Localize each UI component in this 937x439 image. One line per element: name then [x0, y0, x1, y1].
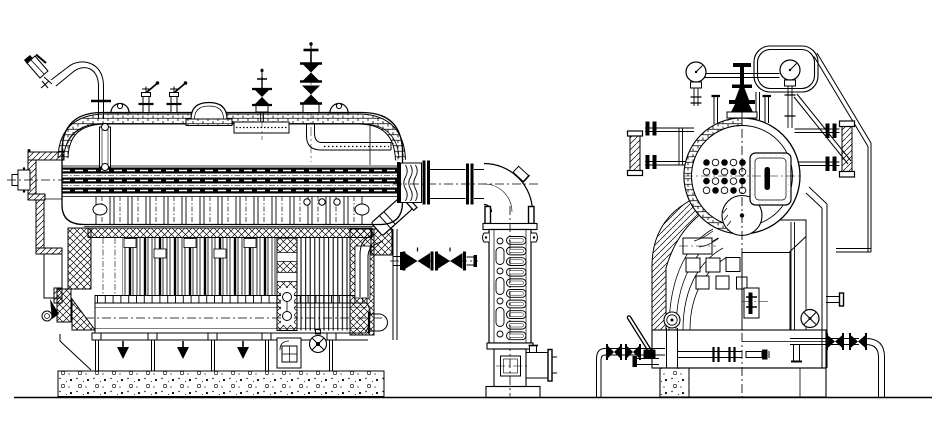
rear-wall [350, 229, 397, 340]
fire-tube-bundle: Fire tube bundle [62, 166, 401, 197]
blowoff-valve-assembly: Blow-off valve [390, 248, 478, 271]
steam-drum-side: Steam drum Fire tube bundle [62, 42, 403, 225]
economizer-column: Economizer / flue column [483, 206, 558, 398]
foundation-left: Concrete foundation [58, 371, 384, 397]
side-elevation-view: Boiler side elevation (sectioned) Concre… [7, 42, 557, 398]
front-casing: Front smokebox casing [7, 149, 64, 321]
boiler-drawing: Ground line Boiler side elevation (secti… [0, 0, 937, 439]
vent-valve-1 [139, 81, 160, 112]
pressure-gauge-1: Pressure gauges [686, 62, 706, 106]
furnace-section: Furnace enclosure Convection tube bank [57, 227, 397, 341]
water-gauge-internal: Water level gauge [100, 124, 111, 171]
convection-tube-bank: Convection tube bank [95, 238, 277, 295]
drum-dome [186, 103, 232, 126]
baffle-wall [277, 238, 297, 331]
manhole-cover: Manhole cover [750, 153, 791, 205]
main-steam-valve: Main steam stop valve [300, 42, 322, 112]
water-gauge-right: Water level gauge [795, 121, 855, 177]
handwheel-valve-end: Handwheel valve [801, 310, 819, 328]
end-elevation-view: Boiler end elevation (half-sectioned) Co… [597, 46, 885, 397]
safety-valve-and-gauges: Safety valve and gauge stand Pressure ga… [686, 60, 800, 128]
feed-check-valve: Feed check valve [252, 69, 272, 112]
vent-valve-2 [167, 81, 188, 112]
steam-outlet-pipe: Steam outlet with expansion joint Flue g… [393, 161, 541, 230]
access-door-box: Access door [277, 338, 301, 368]
drawing-canvas: Ground line Boiler side elevation (secti… [0, 0, 937, 439]
drain-funnels: Drain funnels [117, 341, 249, 359]
sample-pipe: Sampling pipe [24, 55, 111, 120]
foundation-right: Concrete foundation [660, 368, 826, 397]
